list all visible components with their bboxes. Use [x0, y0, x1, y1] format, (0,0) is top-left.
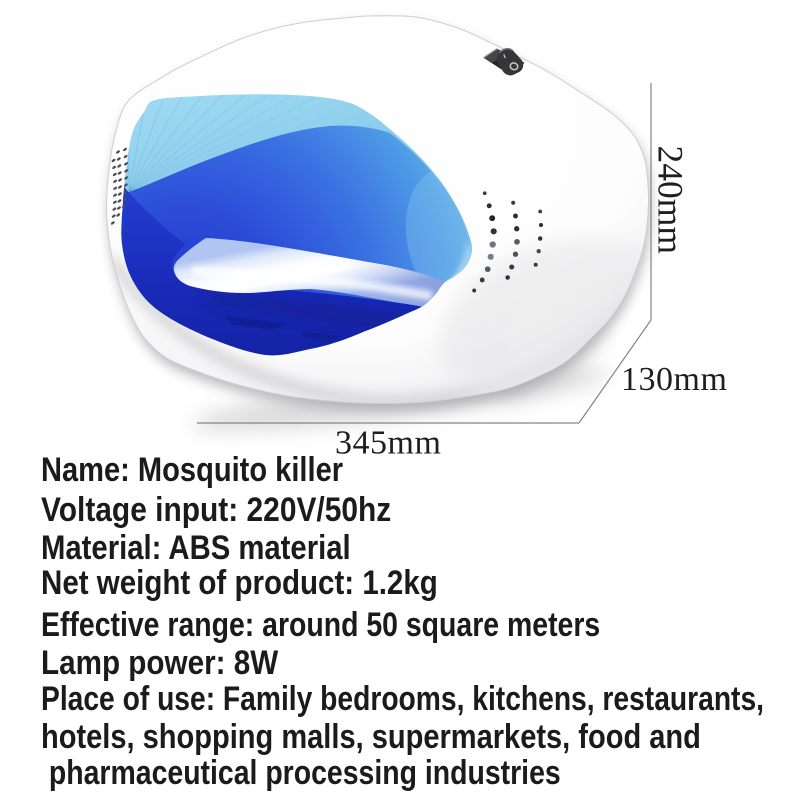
svg-text:240mm: 240mm — [651, 146, 691, 255]
svg-text:130mm: 130mm — [621, 361, 727, 398]
